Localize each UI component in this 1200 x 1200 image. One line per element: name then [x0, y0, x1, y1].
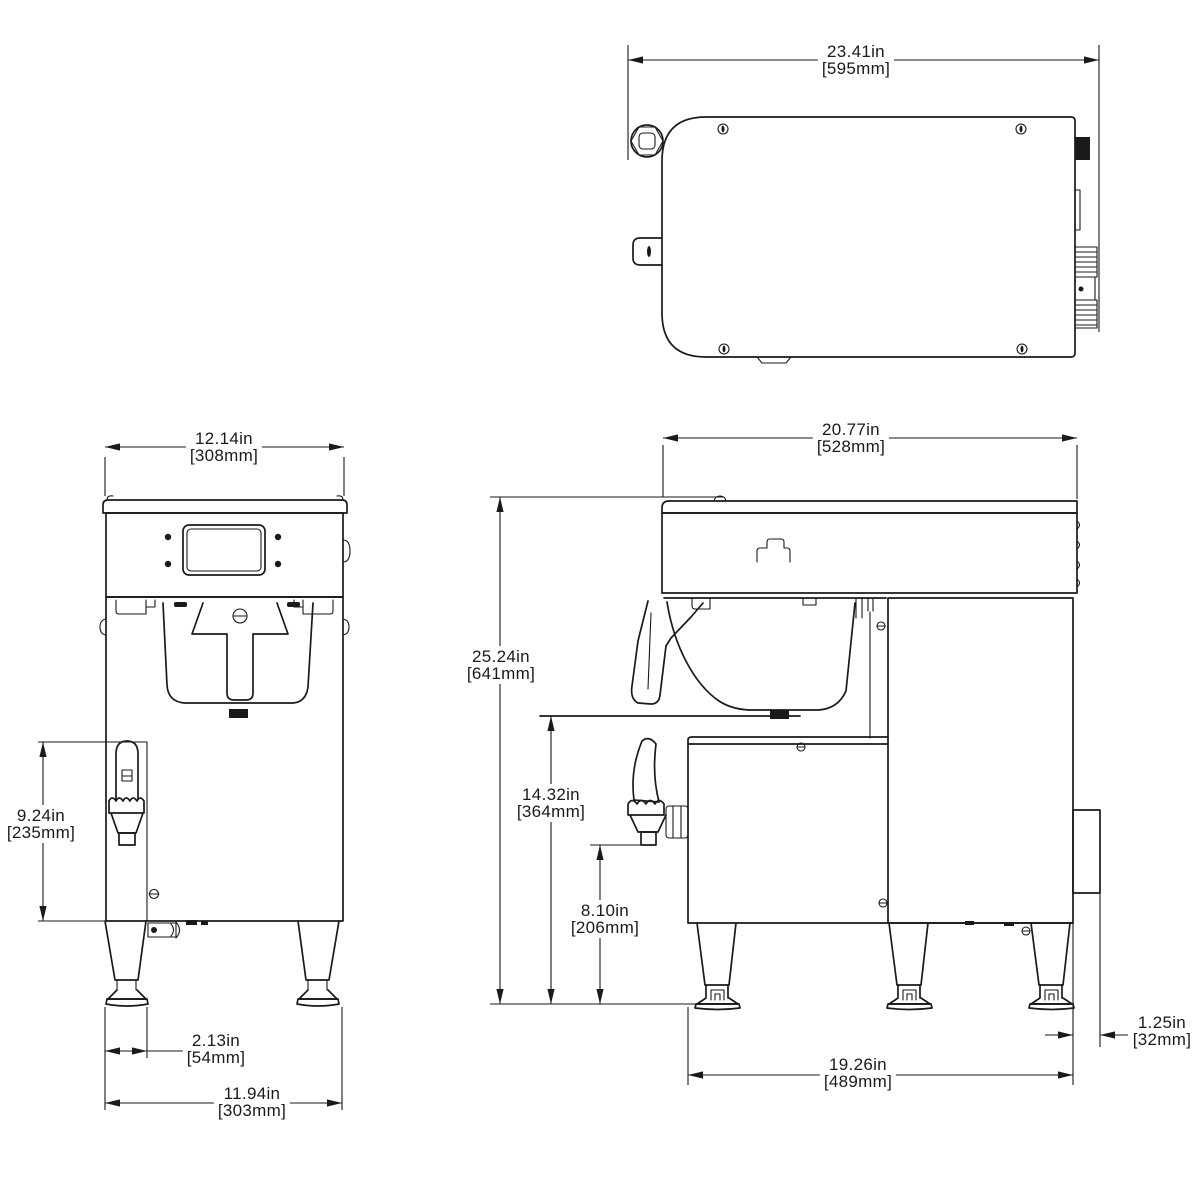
- dim-server-clearance-in: 14.32in: [517, 786, 585, 803]
- dim-side-depth-mm: [528mm]: [817, 438, 885, 455]
- faucet-body: [111, 813, 143, 833]
- faucet-front: [109, 741, 144, 845]
- dim-front-base-width-mm: [303mm]: [218, 1102, 286, 1119]
- dim-faucet-offset-mm: [54mm]: [187, 1049, 245, 1066]
- faucet-side: [628, 739, 688, 845]
- server-base: [688, 737, 1073, 923]
- head-latch: [757, 539, 790, 562]
- faucet-spout: [119, 833, 135, 845]
- side-tower: [888, 598, 1073, 923]
- display-screen-inner: [187, 529, 261, 571]
- front-lower-body: [106, 597, 343, 921]
- dim-faucet-clearance-mm: [206mm]: [571, 919, 639, 936]
- dim-lines-top-depth: [628, 45, 1099, 332]
- dim-rear-projection-mm: [32mm]: [1133, 1031, 1191, 1048]
- rear-connectors: [1075, 137, 1097, 328]
- dim-rear-projection-in: 1.25in: [1133, 1014, 1191, 1031]
- drawing-svg: [0, 0, 1200, 1200]
- dim-base-depth-in: 19.26in: [824, 1056, 892, 1073]
- dim-rear-projection: 1.25in [32mm]: [1129, 1012, 1195, 1050]
- rear-junction-box: [1073, 810, 1100, 893]
- dim-faucet-height-mm: [235mm]: [7, 824, 75, 841]
- dim-faucet-clearance-in: 8.10in: [571, 902, 639, 919]
- dim-faucet-offset-in: 2.13in: [187, 1032, 245, 1049]
- side-head: [662, 513, 1077, 593]
- dim-front-base-width: 11.94in [303mm]: [214, 1083, 290, 1121]
- dim-front-base-width-in: 11.94in: [218, 1085, 286, 1102]
- dim-base-depth: 19.26in [489mm]: [820, 1054, 896, 1092]
- dim-faucet-height: 9.24in [235mm]: [3, 805, 79, 843]
- side-top-cap: [662, 501, 1077, 513]
- side-legs: [695, 899, 1074, 1010]
- front-legs: [105, 921, 339, 1006]
- dim-overall-height: 25.24in [641mm]: [463, 646, 539, 684]
- funnel-outlet: [229, 709, 248, 718]
- funnel-outlet-side: [770, 710, 789, 719]
- dim-front-width: 12.14in [308mm]: [186, 428, 262, 466]
- spec-sheet-drawing: 23.41in [595mm] 12.14in [308mm] 9.24in […: [0, 0, 1200, 1200]
- dim-top-depth-in: 23.41in: [822, 43, 890, 60]
- faucet-panel-line: [106, 742, 147, 921]
- top-view: [628, 45, 1099, 363]
- top-view-body: [662, 117, 1075, 357]
- lid-screw-icon: [718, 124, 1027, 354]
- dim-top-depth-mm: [595mm]: [822, 60, 890, 77]
- dim-lines-front: [38, 447, 344, 1110]
- dim-faucet-offset: 2.13in [54mm]: [183, 1030, 249, 1068]
- dim-server-clearance-mm: [364mm]: [517, 803, 585, 820]
- bottom-tab: [757, 357, 791, 363]
- brew-funnel-front: [163, 603, 313, 718]
- side-view: [490, 438, 1128, 1085]
- front-view: [38, 447, 350, 1110]
- funnel-rails: [116, 600, 333, 614]
- dim-side-depth: 20.77in [528mm]: [813, 419, 889, 457]
- dim-base-depth-mm: [489mm]: [824, 1073, 892, 1090]
- dim-faucet-height-in: 9.24in: [7, 807, 75, 824]
- dim-overall-height-mm: [641mm]: [467, 665, 535, 682]
- dim-front-width-in: 12.14in: [190, 430, 258, 447]
- funnel-handle-side: [632, 601, 703, 704]
- dim-server-clearance: 14.32in [364mm]: [513, 784, 589, 822]
- funnel-handle-front: [192, 603, 288, 700]
- body-screw-icon: [149, 890, 159, 899]
- dim-lines-side: [490, 438, 1128, 1085]
- dim-front-width-mm: [308mm]: [190, 447, 258, 464]
- dim-side-depth-in: 20.77in: [817, 421, 885, 438]
- faucet-bonnet: [109, 798, 144, 813]
- front-top-cap: [103, 500, 347, 513]
- display-screen: [183, 525, 265, 575]
- drain-fitting: [148, 920, 208, 938]
- faucet-handle-side: [633, 739, 659, 802]
- brew-funnel-side: [632, 601, 855, 719]
- head-side-tab: [343, 540, 350, 562]
- dim-faucet-clearance: 8.10in [206mm]: [567, 900, 643, 938]
- server-rail-tab: [633, 238, 662, 265]
- dim-overall-height-in: 25.24in: [467, 648, 535, 665]
- faucet-top-nut: [631, 125, 663, 157]
- dim-top-depth: 23.41in [595mm]: [818, 41, 894, 79]
